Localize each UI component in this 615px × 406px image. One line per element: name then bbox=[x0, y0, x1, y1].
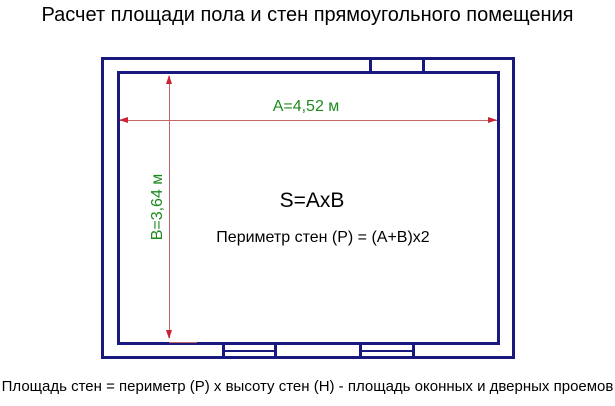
height-dimension-label: B=3,64 м bbox=[149, 174, 167, 241]
bottom-window1-sill-line bbox=[225, 350, 274, 352]
bottom-window1-right-jamb bbox=[274, 344, 277, 359]
bottom-window2-right-jamb bbox=[412, 344, 415, 359]
height-dimension-line bbox=[169, 76, 170, 338]
height-dimension-stub-line bbox=[169, 342, 197, 343]
floor-area-formula: S=AxB bbox=[280, 189, 345, 213]
top-opening-left-jamb bbox=[369, 58, 372, 73]
height-dimension-arrow-bottom bbox=[166, 330, 172, 339]
width-dimension-arrow-left bbox=[119, 117, 128, 123]
perimeter-formula: Периметр стен (Р) = (А+В)х2 bbox=[216, 229, 429, 247]
bottom-window2-sill-line bbox=[362, 350, 412, 352]
width-dimension-label: A=4,52 м bbox=[273, 98, 340, 116]
width-dimension-arrow-right bbox=[488, 117, 497, 123]
page-title: Расчет площади пола и стен прямоугольног… bbox=[0, 4, 615, 27]
top-opening-right-jamb bbox=[422, 58, 425, 73]
wall-area-note: Площадь стен = периметр (Р) х высоту сте… bbox=[0, 378, 615, 395]
height-dimension-arrow-top bbox=[166, 75, 172, 84]
width-dimension-line bbox=[120, 120, 497, 121]
